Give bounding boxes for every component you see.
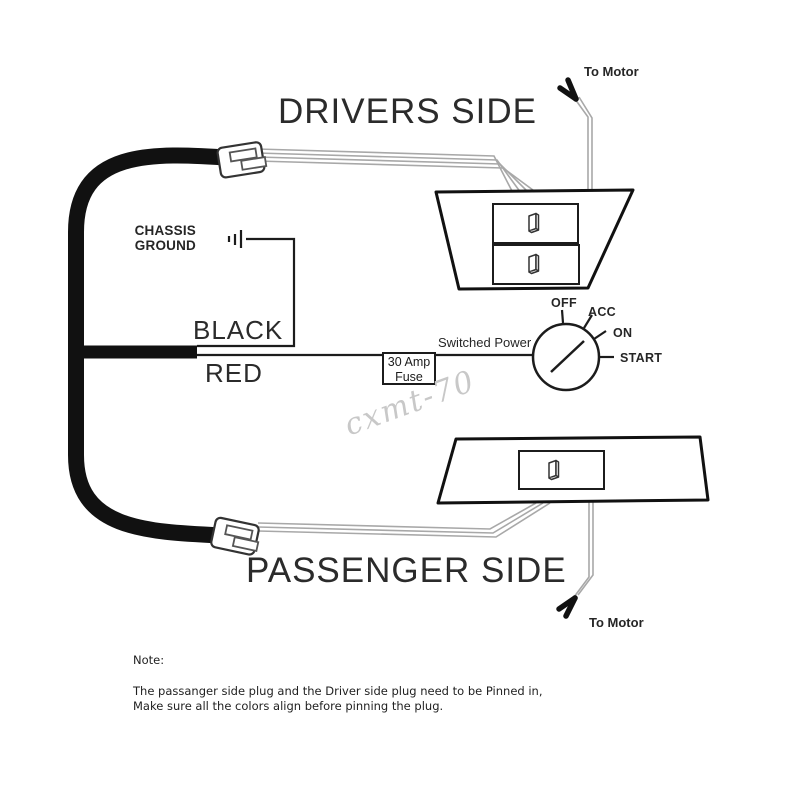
fuse-label-line1: 30 Amp — [384, 355, 434, 370]
motor-connector-bottom-icon — [559, 598, 575, 616]
chassis-ground-symbol — [229, 230, 241, 248]
driver-switch-panel — [436, 190, 633, 289]
ignition-on-label: ON — [613, 326, 632, 340]
chassis-ground-label: CHASSIS GROUND — [122, 223, 196, 253]
black-wire-label: BLACK — [193, 315, 283, 346]
wiring-diagram-canvas: DRIVERS SIDE PASSENGER SIDE CHASSIS GROU… — [0, 0, 800, 800]
driver-wire-bundle — [257, 149, 537, 193]
passenger-motor-wire — [574, 502, 593, 597]
ignition-acc-label: ACC — [588, 305, 616, 319]
passenger-switch-panel — [438, 437, 708, 503]
window-switch-icon — [529, 214, 539, 233]
window-switch-icon — [549, 461, 559, 480]
driver-motor-wire — [575, 97, 592, 193]
motor-connector-top-icon — [560, 80, 576, 99]
ignition-switch — [533, 310, 614, 390]
to-motor-bottom-label: To Motor — [589, 615, 644, 630]
ignition-start-label: START — [620, 351, 662, 365]
note-line-1: The passanger side plug and the Driver s… — [133, 684, 543, 698]
note-heading: Note: — [133, 653, 164, 667]
passenger-side-title: PASSENGER SIDE — [246, 551, 567, 591]
passenger-wire-bundle — [258, 503, 550, 537]
to-motor-top-label: To Motor — [584, 64, 639, 79]
red-wire-label: RED — [205, 358, 263, 389]
window-switch-icon — [529, 255, 539, 274]
drivers-side-title: DRIVERS SIDE — [278, 92, 537, 132]
ignition-off-label: OFF — [551, 296, 577, 310]
switched-power-label: Switched Power — [438, 335, 531, 350]
note-line-2: Make sure all the colors align before pi… — [133, 699, 443, 713]
driver-connector-plug — [217, 141, 267, 178]
